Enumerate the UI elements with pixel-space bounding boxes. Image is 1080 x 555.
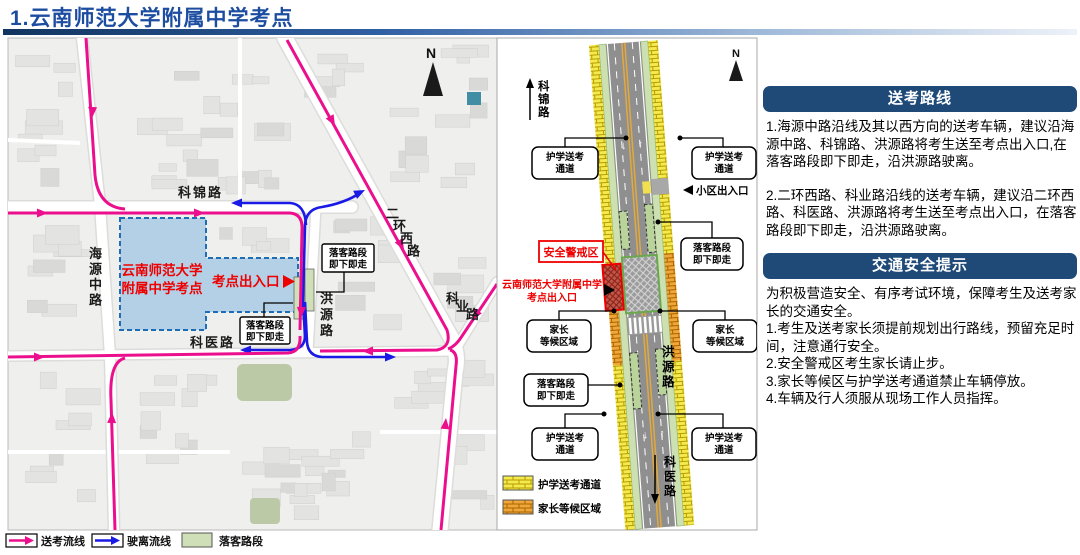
legend-parents-swatch bbox=[503, 500, 533, 514]
escort-callout-bottom-left: 护学送考 通道 bbox=[532, 428, 598, 460]
diagram-keyilu-label: 科医路 bbox=[651, 454, 677, 504]
zebra-crossing bbox=[626, 315, 662, 336]
escort-callout-top-left: 护学送考 通道 bbox=[532, 147, 598, 179]
legend-songkao-label: 送考流线 bbox=[40, 534, 85, 548]
svg-text:落客路段: 落客路段 bbox=[246, 320, 285, 332]
svg-text:N: N bbox=[732, 48, 740, 60]
page: 1.云南师范大学附属中学考点 bbox=[0, 0, 1080, 555]
svg-text:N: N bbox=[426, 45, 436, 61]
svg-text:↑: ↑ bbox=[659, 428, 665, 440]
park-area-south bbox=[250, 498, 280, 524]
legend-escort-label: 护学送考通道 bbox=[538, 478, 601, 491]
safety-item-3: 3.家长等候区与护学送考通道禁止车辆停放。 bbox=[766, 373, 1077, 391]
road-label-kejinlu: 科锦路 bbox=[178, 185, 223, 200]
park-area bbox=[237, 364, 292, 401]
svg-text:安全警戒区: 安全警戒区 bbox=[544, 245, 599, 259]
escort-callout-bottom-right: 护学送考 通道 bbox=[692, 428, 756, 460]
section-header-safety: 交通安全提示 bbox=[763, 253, 1077, 279]
svg-text:等候区域: 等候区域 bbox=[539, 336, 579, 348]
svg-text:落客路段: 落客路段 bbox=[329, 247, 368, 259]
svg-text:家长: 家长 bbox=[549, 324, 569, 336]
parents-callout-right: 家长 等候区域 bbox=[693, 320, 757, 352]
svg-text:考点出入口: 考点出入口 bbox=[527, 291, 577, 304]
svg-text:↓: ↓ bbox=[642, 429, 648, 441]
legend-green-swatch bbox=[182, 533, 212, 547]
svg-text:↑: ↑ bbox=[637, 139, 643, 151]
svg-text:即下即走: 即下即走 bbox=[693, 254, 732, 266]
svg-text:护学送考: 护学送考 bbox=[546, 151, 585, 163]
route-paragraph-1: 1.海源中路沿线及其以西方向的送考车辆，建议沿海源中路、科锦路、洪源路将考生送至… bbox=[766, 118, 1077, 171]
section-header-routes: 送考路线 bbox=[763, 86, 1077, 112]
svg-text:家长: 家长 bbox=[715, 324, 735, 336]
svg-text:等候区域: 等候区域 bbox=[705, 336, 745, 348]
safety-item-4: 4.车辆及行人须服从现场工作人员指挥。 bbox=[766, 390, 1077, 408]
svg-text:通道: 通道 bbox=[555, 444, 575, 456]
route-paragraph-2: 2.二环西路、科业路沿线的送考车辆，建议沿二环西路、科医路、洪源路将考生送至考点… bbox=[766, 187, 1077, 240]
svg-text:即下即走: 即下即走 bbox=[329, 259, 368, 271]
escort-callout-top-right: 护学送考 通道 bbox=[692, 147, 756, 179]
section-body-safety: 为积极营造安全、有序考试环境，保障考生及送考家长的交通安全。 1.考生及送考家长… bbox=[766, 285, 1077, 408]
svg-text:通道: 通道 bbox=[714, 163, 734, 175]
legend-shili-label: 驶离流线 bbox=[127, 534, 171, 548]
svg-text:护学送考: 护学送考 bbox=[705, 432, 744, 444]
svg-text:即下即走: 即下即走 bbox=[246, 331, 285, 343]
svg-text:科锦路: 科锦路 bbox=[538, 79, 550, 119]
legend-parents-label: 家长等候区域 bbox=[538, 502, 601, 515]
legend-luoke-label: 落客路段 bbox=[219, 534, 263, 548]
svg-text:↓: ↓ bbox=[620, 140, 626, 152]
safety-item-2: 2.安全警戒区考生家长请止步。 bbox=[766, 355, 1077, 373]
map-legend: 送考流线 驶离流线 落客路段 bbox=[6, 533, 263, 548]
safety-intro: 为积极营造安全、有序考试环境，保障考生及送考家长的交通安全。 bbox=[766, 285, 1077, 320]
svg-text:云南师范大学附属中学: 云南师范大学附属中学 bbox=[502, 278, 602, 291]
section-body-routes: 1.海源中路沿线及其以西方向的送考车辆，建议沿海源中路、科锦路、洪源路将考生送至… bbox=[766, 118, 1077, 255]
road-label-keyilu: 科医路 bbox=[190, 335, 235, 350]
svg-text:落客路段: 落客路段 bbox=[537, 378, 576, 390]
parents-callout-left: 家长 等候区域 bbox=[527, 320, 591, 352]
teal-building bbox=[467, 92, 481, 105]
legend-escort-swatch bbox=[503, 476, 533, 490]
community-entrance-road bbox=[651, 178, 669, 195]
dropoff-callout-right: 落客路段 即下即走 bbox=[681, 238, 743, 270]
road-label-hongyuanlu: 洪源路 bbox=[320, 291, 334, 338]
svg-text:护学送考: 护学送考 bbox=[705, 151, 744, 163]
svg-text:护学送考: 护学送考 bbox=[546, 432, 585, 444]
dropoff-callout-left: 落客路段 即下即走 bbox=[524, 374, 588, 406]
svg-text:落客路段: 落客路段 bbox=[693, 242, 732, 254]
no-stop-zone bbox=[622, 255, 661, 313]
road-label-haiyuanzhonglu: 海源中路 bbox=[89, 246, 103, 308]
map-entrance-label: 考点出入口 bbox=[212, 273, 280, 289]
svg-text:通道: 通道 bbox=[555, 163, 575, 175]
svg-text:通道: 通道 bbox=[714, 444, 734, 456]
svg-text:即下即走: 即下即走 bbox=[537, 390, 576, 402]
diagram-hongyuanlu-label: 洪源路 bbox=[662, 344, 675, 389]
campus-label-line1: 云南师范大学 bbox=[122, 262, 203, 278]
diagram-kejinlu-label: 科锦路 bbox=[526, 78, 550, 120]
svg-text:科医路: 科医路 bbox=[664, 454, 677, 498]
campus-label-line2: 附属中学考点 bbox=[122, 280, 203, 296]
svg-text:小区出入口: 小区出入口 bbox=[695, 184, 749, 197]
safety-item-1: 1.考生及送考家长须提前规划出行路线，预留充足时间，注意通行安全。 bbox=[766, 320, 1077, 355]
